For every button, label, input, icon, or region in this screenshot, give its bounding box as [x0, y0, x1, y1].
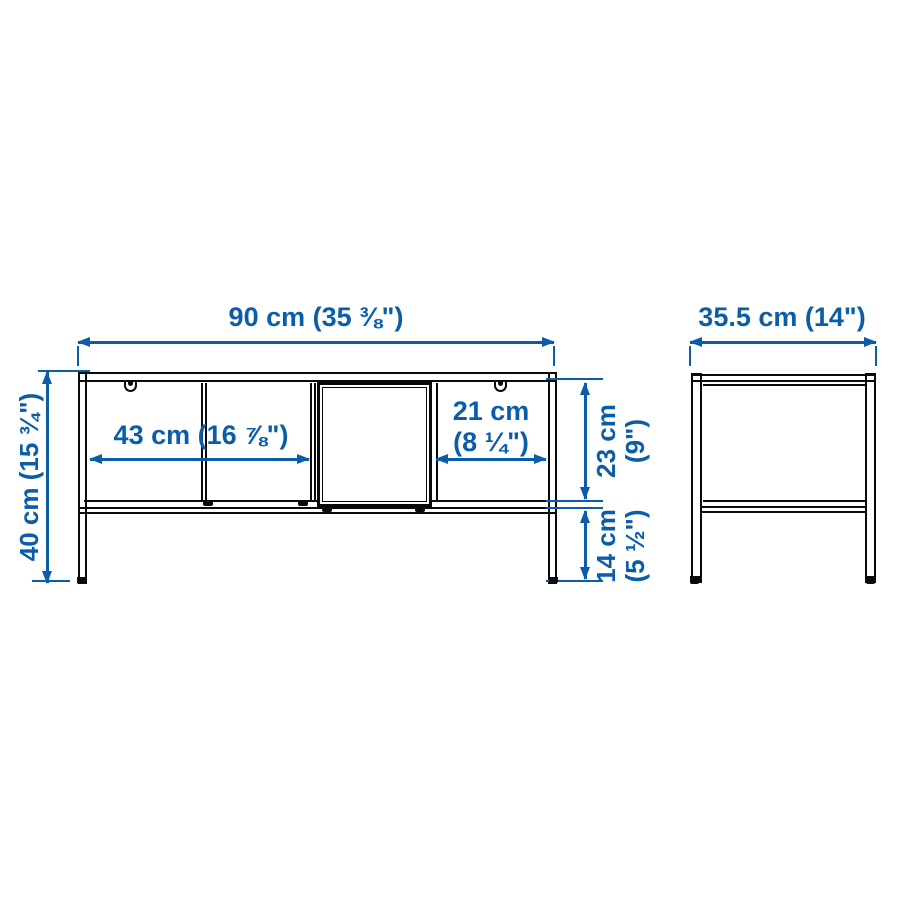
right-compartment-width-line2: (8 ¼"): [432, 427, 550, 458]
front-right-leg-foot: [549, 577, 558, 584]
leg-clearance-arrow: [584, 511, 587, 579]
leg-clearance-line1: 14 cm: [592, 490, 621, 602]
shelf-width-label: 43 cm (16 ⅞"): [88, 420, 314, 451]
side-front-leg-foot: [690, 576, 700, 584]
door-foot: [322, 506, 332, 512]
divider-foot: [298, 501, 308, 506]
compartment-height-label: 23 cm (9"): [592, 379, 650, 503]
dimension-diagram: 90 cm (35 ⅜") 35.5 cm (14") 40 cm (15 ¾"…: [0, 0, 900, 900]
overall-height-label: 40 cm (15 ¾"): [12, 362, 46, 592]
arrowhead-down-icon: [580, 567, 590, 580]
leg-clearance-line2: (5 ½"): [621, 490, 650, 602]
compartment-height-line2: (9"): [621, 379, 650, 503]
divider-foot: [203, 501, 213, 506]
overall-width-label: 90 cm (35 ⅜"): [78, 302, 554, 333]
front-cabinet-door-panel: [322, 387, 427, 502]
right-compartment-width-line1: 21 cm: [432, 396, 550, 427]
side-back-leg-foot: [866, 576, 876, 584]
depth-label: 35.5 cm (14"): [686, 302, 878, 333]
leg-clearance-label: 14 cm (5 ½"): [592, 490, 650, 602]
door-foot: [415, 506, 425, 512]
front-left-leg-foot: [77, 577, 86, 584]
compartment-height-line1: 23 cm: [592, 379, 621, 503]
arrowhead-up-icon: [580, 510, 590, 523]
front-cabinet-door: [317, 382, 432, 507]
right-compartment-width-label: 21 cm (8 ¼"): [432, 396, 550, 458]
